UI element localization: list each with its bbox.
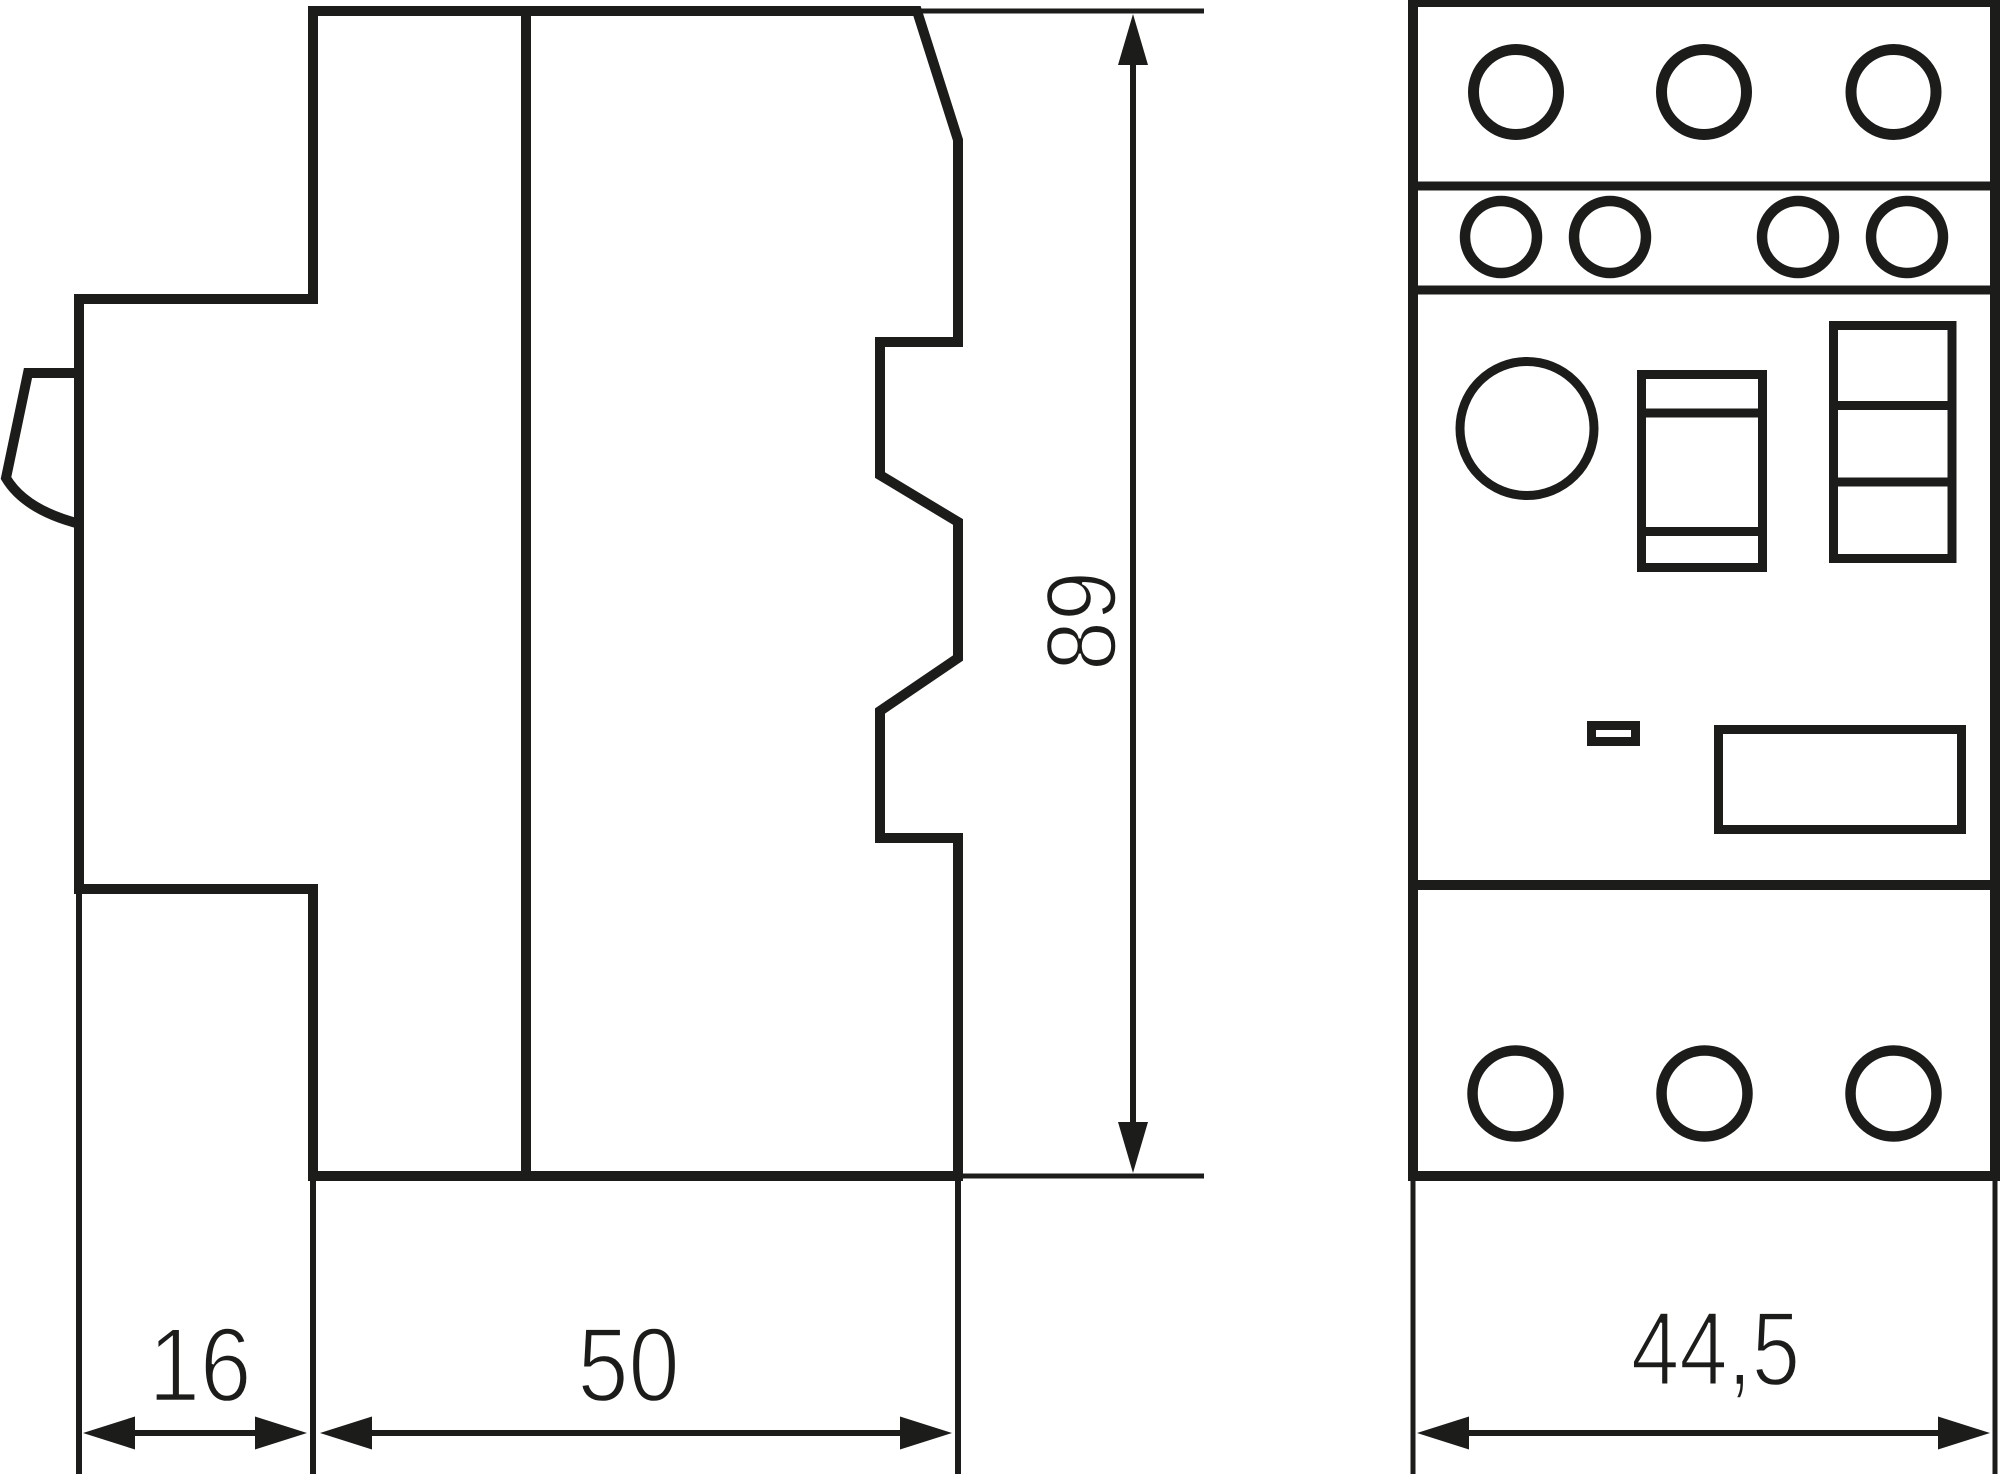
svg-text:44,5: 44,5 <box>1631 1291 1800 1408</box>
svg-text:50: 50 <box>578 1307 680 1424</box>
svg-text:16: 16 <box>149 1307 252 1424</box>
svg-text:89: 89 <box>1026 571 1137 671</box>
